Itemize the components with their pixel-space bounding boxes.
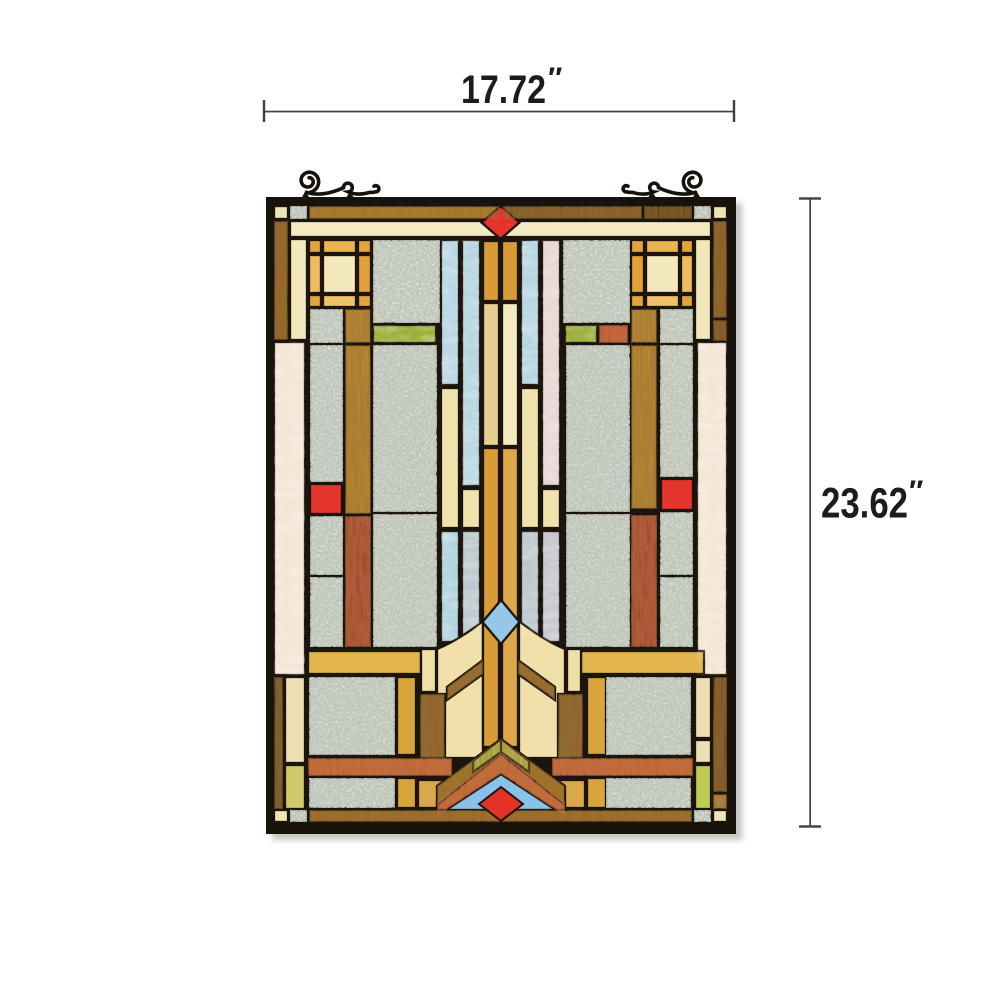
svg-text:″: ″ <box>548 62 562 95</box>
svg-text:23.62: 23.62 <box>821 480 908 528</box>
svg-text:17.72: 17.72 <box>461 68 546 112</box>
svg-text:″: ″ <box>909 475 923 508</box>
